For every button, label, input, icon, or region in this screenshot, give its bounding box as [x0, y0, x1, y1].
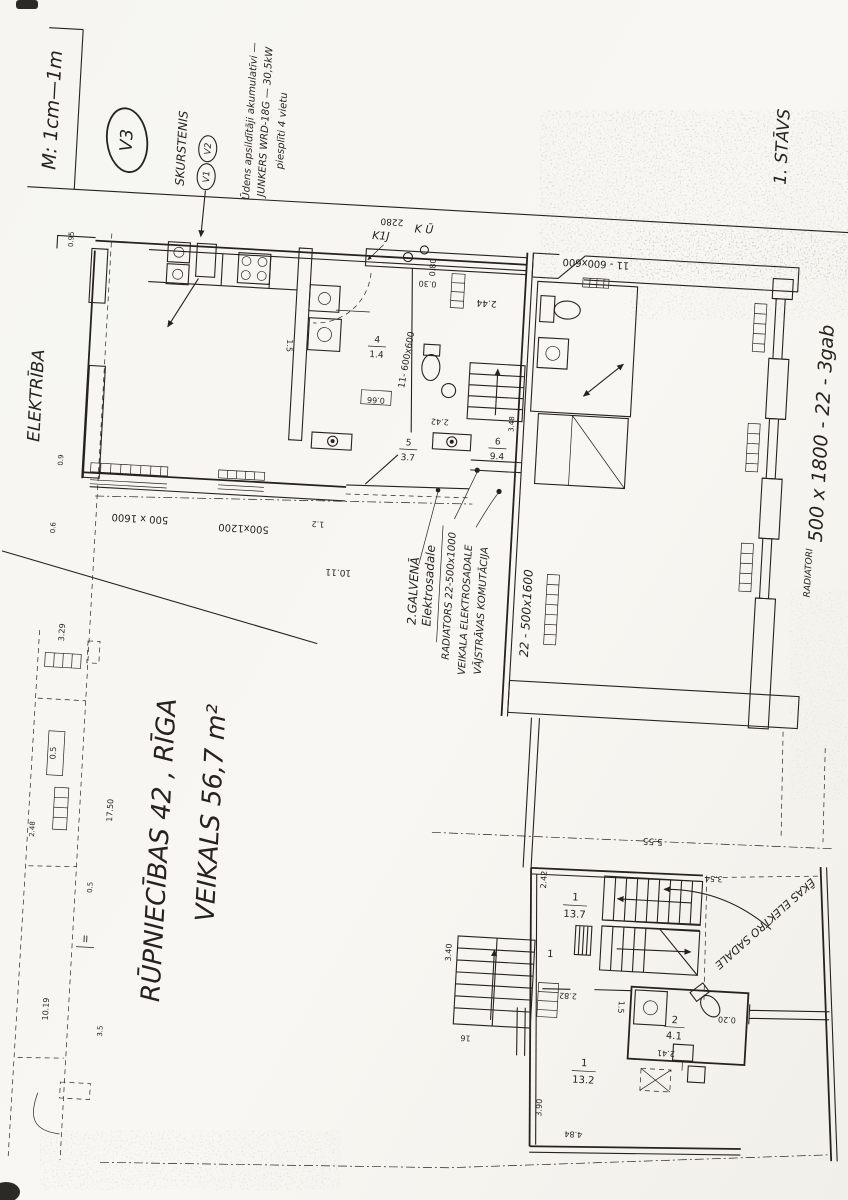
room-137-area: 13.7 — [563, 909, 586, 921]
dim-3-48: 3.48 — [507, 416, 516, 432]
basin-unit — [309, 285, 340, 313]
dim-0-20: 0.20 — [718, 1015, 736, 1025]
radiator — [537, 982, 559, 1017]
dim-0-5b: 0.5 — [86, 882, 95, 894]
cabinet — [574, 925, 592, 955]
dim-2-42-wc: 2.42 — [431, 417, 449, 427]
radiator — [739, 543, 754, 592]
kitchen-fixtures — [146, 241, 300, 334]
chimney-label: SKURSTENIS — [173, 110, 191, 186]
radiator — [746, 423, 761, 472]
toilet — [554, 300, 581, 319]
scanned-floorplan-page: M: 1cm—1m V3 SKURSTENIS V1 V2 Ūdens apsi… — [0, 0, 848, 1200]
dim-2280: 2280 — [380, 215, 404, 226]
dim-5-55: 5.55 — [643, 835, 664, 846]
dim-3-40: 3.40 — [444, 943, 454, 961]
electricity-label: ELEKTRĪBA — [22, 349, 49, 443]
dim-2-82: 2.82 — [559, 991, 577, 1001]
door-leaf — [365, 453, 398, 486]
radiator — [218, 470, 264, 481]
dim-0-80: 0.80 — [428, 258, 438, 276]
room-label-closet: 1.5 — [285, 339, 295, 352]
scale-note: M: 1cm—1m — [38, 50, 67, 171]
corridor-stairs: 2.44 3.48 2.42 0.30 0.80 K1J K Ū 11- 600… — [356, 220, 534, 473]
stove — [237, 253, 271, 285]
dim-16: 16 — [460, 1033, 471, 1043]
radiator-hall-left — [544, 574, 560, 645]
dim-3-54: 3.54 — [705, 874, 723, 884]
shop-panel-note: VEIKALA ELEKTROSADALE — [457, 544, 475, 676]
riser-ladder — [450, 274, 465, 309]
radiator-hall-note: 22 - 500x1600 — [517, 569, 536, 658]
window-dim-2: 500x1200 — [218, 521, 269, 535]
dim-0-5: 0.5 — [48, 746, 58, 759]
radiator-right-spec: 500 x 1800 - 22 - 3gab — [805, 324, 839, 543]
dim-3-90: 3.90 — [534, 1099, 544, 1117]
sink — [166, 264, 189, 285]
heater-note-line3: piesplīti 4 vietu — [275, 92, 290, 170]
dim-0-30: 0.30 — [418, 279, 436, 289]
dim-0-95: 0.95 — [67, 231, 76, 247]
dim-10-19: 10.19 — [41, 997, 51, 1020]
radiator-note: RADIATORS 22-500x1000 — [441, 532, 459, 660]
dim-2-42: 2.42 — [539, 870, 549, 888]
dim-0-66: 0.66 — [367, 395, 385, 405]
riser-k1j: K1J — [372, 229, 390, 243]
dim-3-5: 3.5 — [96, 1025, 105, 1037]
room-5-num: 5 — [405, 438, 411, 448]
shop-south-wall — [81, 462, 473, 517]
shop-left-wing: 1.5 — [40, 225, 528, 586]
room-137-num: 1 — [572, 892, 579, 903]
title-premises: VEIKALS 56,7 m² — [191, 703, 233, 922]
version-badge: V3 — [116, 128, 137, 152]
room-41-num: 2 — [671, 1015, 678, 1026]
room-132-num: 1 — [581, 1058, 588, 1069]
riser-ku: K Ū — [414, 222, 433, 236]
floorplan-drawing: M: 1cm—1m V3 SKURSTENIS V1 V2 Ūdens apsi… — [0, 0, 848, 1200]
vent-v2: V2 — [203, 142, 214, 155]
title-address: RŪPNIECĪBAS 42 , RĪGA — [135, 697, 183, 1002]
room-1-label: 1 — [547, 949, 554, 960]
lower-wc-room — [626, 979, 831, 1101]
wash-basin — [441, 383, 456, 398]
mark-II: II — [82, 935, 88, 945]
east-wall-windows — [731, 278, 793, 729]
wall-pier — [83, 365, 105, 478]
dim-1-2: 1.2 — [311, 519, 324, 529]
dim-4-84: 4.84 — [564, 1129, 582, 1139]
wash-basin — [537, 337, 569, 369]
south-wall — [508, 680, 799, 728]
dim-0-6: 0.6 — [49, 521, 58, 533]
dim-2-48: 2.48 — [28, 821, 37, 837]
dim-17-50: 17.50 — [105, 799, 115, 822]
window-dim-1: 500 x 1600 — [111, 511, 168, 525]
boundary-lines: 0.95 0.9 0.6 — [0, 186, 848, 1200]
wash-basin — [634, 990, 668, 1026]
dim-3-29: 3.29 — [57, 623, 67, 641]
toilet — [421, 354, 440, 381]
chimney-flue — [196, 243, 217, 277]
dim-2-41: 2.41 — [657, 1048, 675, 1058]
room-132-area: 13.2 — [572, 1075, 595, 1087]
window-dim-side: 11- 600x600 — [397, 331, 417, 389]
room-4-num: 4 — [374, 335, 381, 345]
sales-hall: 11 - 600x600 RADIATORI 500 x 1800 - 22 -… — [391, 245, 848, 885]
dim-0-9: 0.9 — [57, 454, 66, 466]
room-4-area: 1.4 — [369, 350, 384, 361]
room-5-area: 3.7 — [400, 453, 415, 464]
room-41-area: 4.1 — [666, 1031, 682, 1043]
building-panel-note: ĒKAS ELEKTRO SADALE — [712, 875, 817, 971]
electro-annotations: 2.GALVENĀ Elektrosadale RADIATORS 22-500… — [402, 464, 503, 676]
room-6-num: 6 — [495, 437, 502, 447]
basin-unit — [308, 318, 342, 352]
left-sheds: 3.29 0.5 17.50 2.48 0.5 II 10.19 3.5 — [12, 622, 127, 1136]
main-panel-note-2: Elektrosadale — [419, 545, 438, 627]
dim-corridor: 2.44 — [476, 297, 497, 308]
hall-wc-block — [527, 275, 638, 488]
vent-v1: V1 — [202, 171, 213, 183]
room-label-closet2: 1.5 — [616, 1001, 626, 1014]
room-6-area: 9.4 — [490, 452, 505, 463]
room-label-hall: 10.11 — [325, 566, 351, 577]
